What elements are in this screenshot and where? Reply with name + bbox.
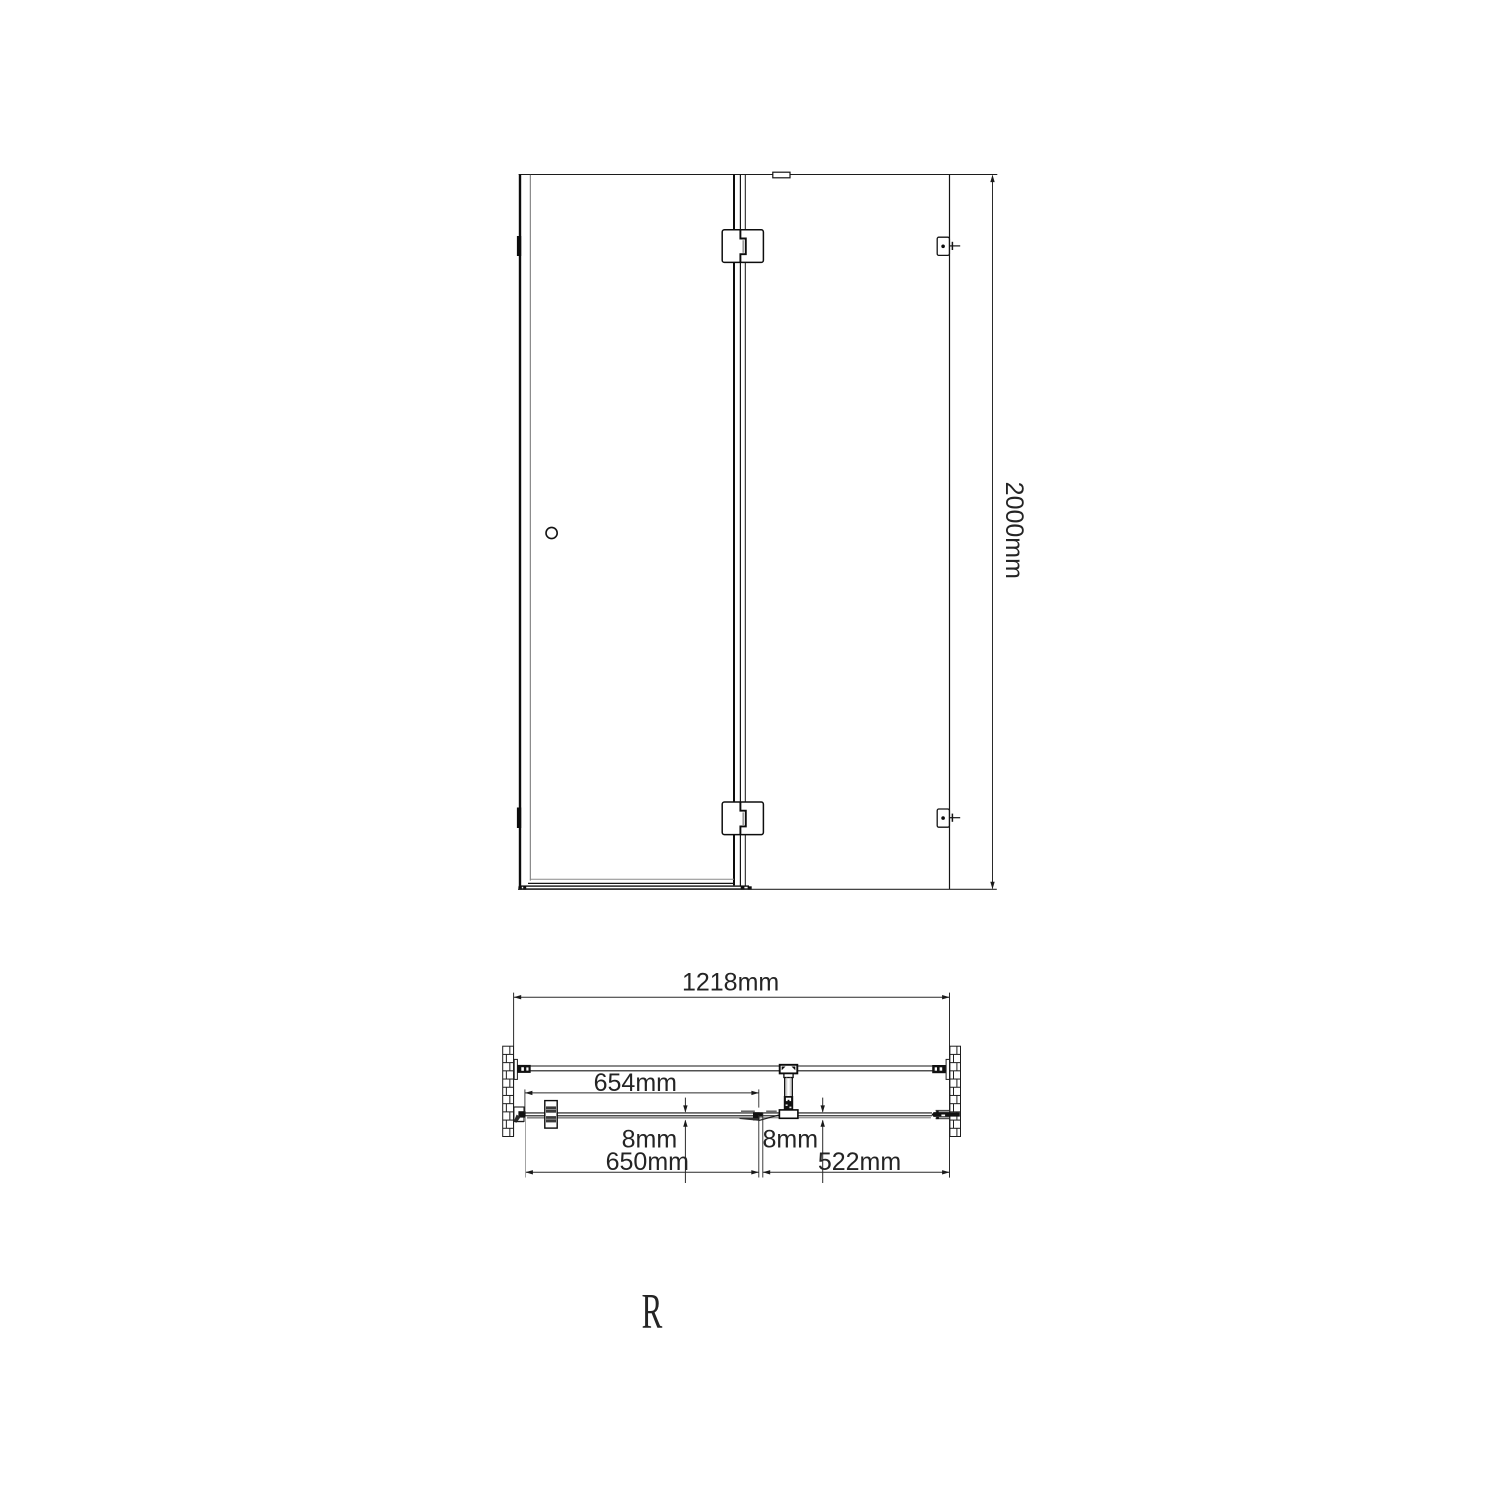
svg-text:R: R <box>642 1283 663 1338</box>
svg-text:2000mm: 2000mm <box>1000 482 1028 579</box>
svg-text:8mm: 8mm <box>763 1125 819 1153</box>
svg-text:1218mm: 1218mm <box>682 969 779 997</box>
